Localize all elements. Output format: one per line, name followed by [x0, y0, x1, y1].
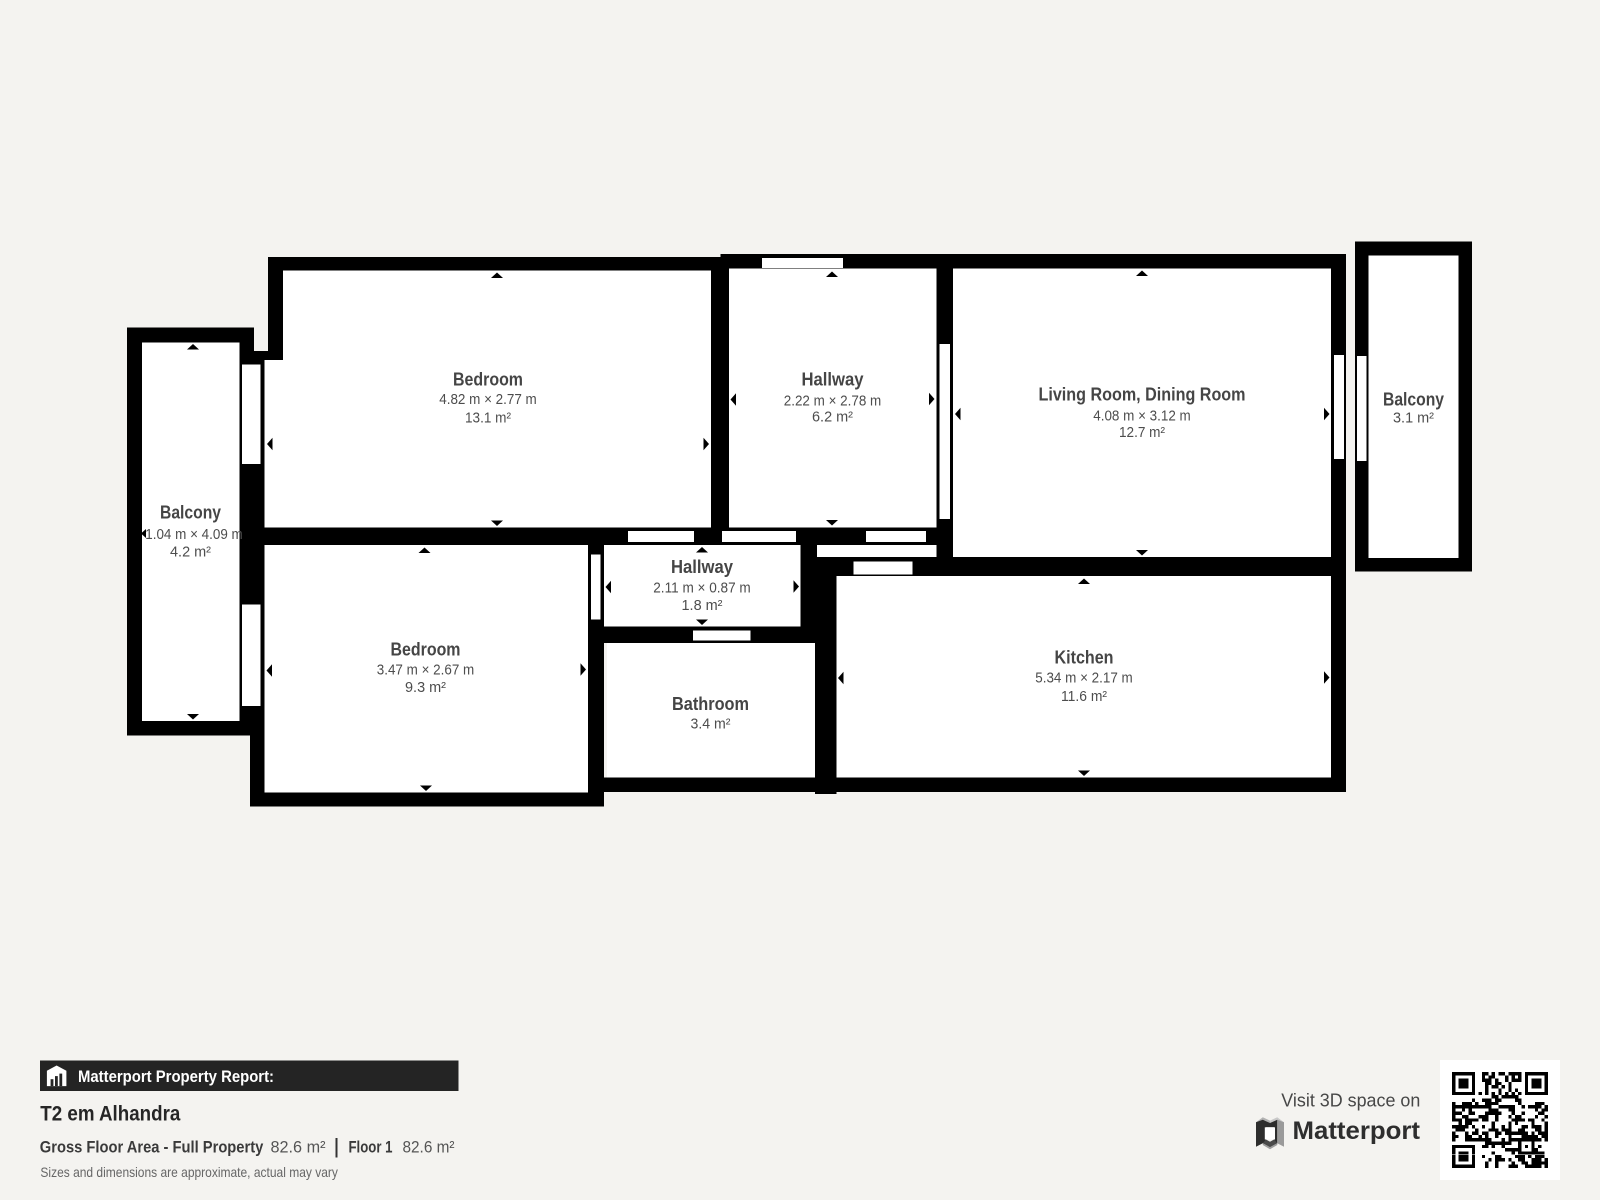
- svg-text:82.6 m²: 82.6 m²: [403, 1138, 455, 1157]
- svg-text:6.2 m²: 6.2 m²: [812, 410, 853, 426]
- svg-text:Hallway: Hallway: [802, 370, 864, 390]
- svg-text:3.1 m²: 3.1 m²: [1393, 411, 1434, 427]
- svg-text:T2 em Alhandra: T2 em Alhandra: [40, 1103, 180, 1126]
- svg-text:Kitchen: Kitchen: [1055, 648, 1114, 668]
- svg-text:2.11 m × 0.87 m: 2.11 m × 0.87 m: [653, 581, 751, 597]
- svg-text:Matterport: Matterport: [1293, 1117, 1421, 1145]
- svg-text:Balcony: Balcony: [1383, 390, 1444, 410]
- svg-text:Living Room, Dining Room: Living Room, Dining Room: [1039, 385, 1246, 405]
- svg-text:3.47 m × 2.67 m: 3.47 m × 2.67 m: [377, 663, 475, 679]
- svg-text:4.08 m × 3.12 m: 4.08 m × 3.12 m: [1093, 409, 1191, 425]
- svg-text:Matterport Property Report:: Matterport Property Report:: [78, 1068, 274, 1086]
- svg-text:12.7 m²: 12.7 m²: [1119, 425, 1165, 441]
- svg-text:Bedroom: Bedroom: [453, 370, 523, 390]
- svg-text:4.82 m × 2.77 m: 4.82 m × 2.77 m: [439, 392, 537, 408]
- svg-text:9.3 m²: 9.3 m²: [405, 680, 446, 696]
- svg-text:4.2 m²: 4.2 m²: [170, 545, 211, 561]
- svg-text:Hallway: Hallway: [671, 557, 733, 577]
- svg-text:2.22 m × 2.78 m: 2.22 m × 2.78 m: [784, 394, 882, 410]
- svg-text:Sizes and dimensions are appro: Sizes and dimensions are approximate, ac…: [40, 1164, 338, 1180]
- svg-text:Floor 1: Floor 1: [349, 1138, 393, 1157]
- svg-text:Bathroom: Bathroom: [672, 694, 749, 714]
- svg-text:5.34 m × 2.17 m: 5.34 m × 2.17 m: [1035, 671, 1133, 687]
- svg-text:Gross Floor Area - Full Proper: Gross Floor Area - Full Property: [40, 1138, 264, 1157]
- svg-text:1.04 m × 4.09 m: 1.04 m × 4.09 m: [145, 527, 243, 543]
- svg-text:1.8 m²: 1.8 m²: [682, 598, 723, 614]
- svg-text:13.1 m²: 13.1 m²: [465, 411, 511, 427]
- svg-text:Visit 3D space on: Visit 3D space on: [1281, 1091, 1420, 1111]
- svg-text:82.6 m²: 82.6 m²: [271, 1138, 326, 1157]
- svg-text:Balcony: Balcony: [160, 503, 221, 523]
- svg-text:Bedroom: Bedroom: [391, 640, 461, 660]
- svg-text:3.4 m²: 3.4 m²: [691, 717, 731, 733]
- svg-text:11.6 m²: 11.6 m²: [1061, 689, 1107, 705]
